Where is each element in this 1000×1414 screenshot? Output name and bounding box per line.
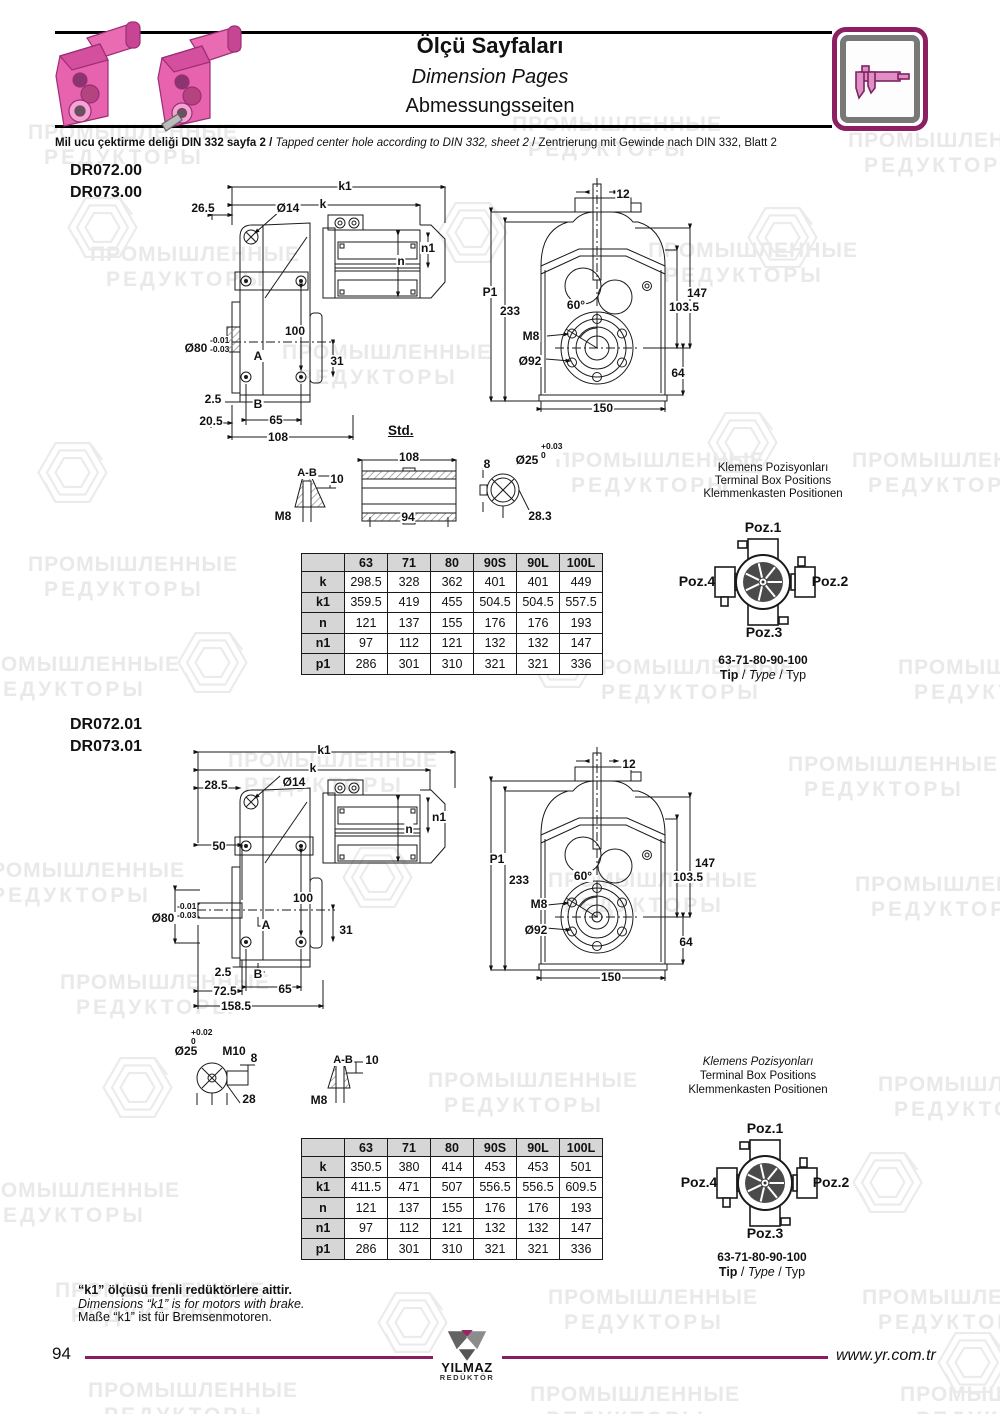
- dim-label: M8: [522, 330, 541, 342]
- yilmaz-logo-icon: [436, 1330, 498, 1362]
- value-cell: 298.5: [345, 572, 388, 593]
- value-cell: 504.5: [517, 592, 560, 613]
- dim-label: 103.5: [668, 301, 700, 313]
- value-cell: 556.5: [517, 1177, 560, 1198]
- dim-label: 10: [364, 1054, 379, 1066]
- dim-label: 147: [694, 857, 716, 869]
- dim-label: B: [253, 968, 264, 980]
- table-header-cell: 71: [388, 1139, 431, 1157]
- value-cell: 321: [474, 1239, 517, 1260]
- table-row: k298.5328362401401449: [302, 572, 603, 593]
- dim-label: A: [253, 350, 264, 362]
- value-cell: 556.5: [474, 1177, 517, 1198]
- watermark-hexagon-icon: [30, 430, 115, 515]
- value-cell: 121: [345, 613, 388, 634]
- dim-label: Ø80: [151, 912, 176, 924]
- value-cell: 414: [431, 1157, 474, 1178]
- page-number: 94: [52, 1344, 71, 1364]
- model-codes-section1: DR072.00 DR073.00: [70, 160, 142, 204]
- terminal-heading-en: Terminal Box Positions: [700, 1070, 816, 1082]
- table-header-cell: 63: [345, 1139, 388, 1157]
- value-cell: 609.5: [560, 1177, 603, 1198]
- value-cell: 401: [474, 572, 517, 593]
- catalog-page: ПРОМЫШЛЕННЫЕРЕДУКТОРЫ ПРОМЫШЛЕННЫЕРЕДУКТ…: [0, 0, 1000, 1414]
- dim-label: n: [404, 823, 413, 835]
- table-header-cell: [302, 1139, 345, 1157]
- dim-label: 26.5: [190, 202, 215, 214]
- watermark-text: ПРОМЫШЛЕННЫЕРЕДУКТОРЫ: [788, 752, 998, 802]
- type-de: Typ: [786, 668, 806, 682]
- dim-label: 2.5: [204, 393, 223, 405]
- dim-label: P1: [482, 286, 499, 298]
- dim-label: P1: [489, 853, 506, 865]
- row-label-cell: n: [302, 1198, 345, 1219]
- side-view-drawing-s1: [185, 180, 457, 446]
- front-view-drawing-s1: [483, 178, 718, 418]
- tolerance-stack: +0.02 0: [191, 1028, 213, 1045]
- value-cell: 121: [431, 1218, 474, 1239]
- row-label-cell: k1: [302, 592, 345, 613]
- dim-label: k: [309, 762, 318, 774]
- value-cell: 132: [474, 633, 517, 654]
- dim-label: 94: [400, 511, 415, 523]
- poz1-label: Poz.1: [745, 519, 782, 535]
- watermark-text: ПРОМЫШЛЕННЫЕРЕДУКТОРЫ: [848, 128, 1000, 178]
- value-cell: 137: [388, 613, 431, 634]
- watermark-text: ПРОМЫШЛЕННЫЕРЕДУКТОРЫ: [855, 872, 1000, 922]
- dim-label: 100: [284, 325, 306, 337]
- tolerance-stack: -0.01 -0.03: [210, 336, 229, 353]
- row-label-cell: k1: [302, 1177, 345, 1198]
- dim-label: Ø25: [515, 454, 540, 466]
- model-codes-section2: DR072.01 DR073.01: [70, 714, 142, 758]
- type-en: Type: [749, 668, 776, 682]
- value-cell: 121: [345, 1198, 388, 1219]
- poz4-label: Poz.4: [679, 573, 716, 589]
- dim-label: 233: [499, 305, 521, 317]
- table-row: k350.5380414453453501: [302, 1157, 603, 1178]
- table-row: n121137155176176193: [302, 1198, 603, 1219]
- poz2-label: Poz.2: [812, 573, 849, 589]
- footnote-english: Dimensions “k1” is for motors with brake…: [78, 1298, 304, 1312]
- value-cell: 137: [388, 1198, 431, 1219]
- din-note-separator: /: [532, 137, 535, 149]
- din-note-german: Zentrierung mit Gewinde nach DIN 332, Bl…: [539, 137, 777, 149]
- value-cell: 411.5: [345, 1177, 388, 1198]
- value-cell: 301: [388, 1239, 431, 1260]
- watermark-text: ПРОМЫШЛЕННЫЕРЕДУКТОРЫ: [898, 655, 1000, 705]
- type-de: Typ: [785, 1265, 805, 1279]
- dim-label: k: [319, 198, 328, 210]
- table-row: p1286301310321321336: [302, 654, 603, 675]
- dim-label: n: [396, 255, 405, 267]
- model-code: DR072.01: [70, 714, 142, 736]
- table-row: n197112121132132147: [302, 1218, 603, 1239]
- dim-label: 65: [277, 983, 292, 995]
- dim-label: 150: [592, 402, 614, 414]
- footer-rule-right: [502, 1356, 828, 1359]
- table-header-cell: [302, 554, 345, 572]
- dim-label: 28: [241, 1093, 256, 1105]
- table-header-cell: 100L: [560, 1139, 603, 1157]
- table-header-cell: 80: [431, 554, 474, 572]
- model-code: DR072.00: [70, 160, 142, 182]
- table-row: n197112121132132147: [302, 633, 603, 654]
- watermark-text: ПРОМЫШЛЕННЫЕРЕДУКТОРЫ: [88, 1378, 298, 1414]
- value-cell: 336: [560, 654, 603, 675]
- dim-label: 233: [508, 874, 530, 886]
- row-label-cell: k: [302, 572, 345, 593]
- table-header-cell: 71: [388, 554, 431, 572]
- tolerance-lower: 0: [541, 451, 563, 460]
- row-label-cell: p1: [302, 1239, 345, 1260]
- logo-subtitle: REDÜKTÖR: [434, 1373, 500, 1382]
- value-cell: 359.5: [345, 592, 388, 613]
- value-cell: 112: [388, 1218, 431, 1239]
- type-label: Tip / Type / Typ: [720, 668, 806, 682]
- table-header-cell: 100L: [560, 554, 603, 572]
- terminal-heading-de: Klemmenkasten Positionen: [688, 1084, 827, 1096]
- dim-label: 65: [268, 414, 283, 426]
- dimension-chapter-icon-frame: [832, 27, 928, 131]
- dim-label: M8: [530, 898, 549, 910]
- type-tr: Tip: [719, 1265, 738, 1279]
- dim-label: 72.5: [212, 985, 237, 997]
- k1-footnote: “k1” ölçüsü frenli redüktörlere aittir. …: [78, 1284, 304, 1325]
- tolerance-lower: 0: [191, 1037, 213, 1046]
- dim-label: k1: [337, 180, 352, 192]
- value-cell: 112: [388, 633, 431, 654]
- row-label-cell: n1: [302, 1218, 345, 1239]
- frame-sizes-label: 63-71-80-90-100: [718, 653, 807, 667]
- poz1-label: Poz.1: [747, 1120, 784, 1136]
- value-cell: 350.5: [345, 1157, 388, 1178]
- value-cell: 176: [474, 1198, 517, 1219]
- dim-label: 64: [678, 936, 693, 948]
- watermark-text: ПРОМЫШЛЕННЫЕРЕДУКТОРЫ: [878, 1072, 1000, 1122]
- value-cell: 97: [345, 633, 388, 654]
- value-cell: 132: [517, 633, 560, 654]
- din-note-english: Tapped center hole according to DIN 332,…: [276, 137, 529, 149]
- dim-label: 147: [686, 287, 708, 299]
- value-cell: 471: [388, 1177, 431, 1198]
- watermark-text: ПРОМЫШЛЕННЫЕРЕДУКТОРЫ: [852, 448, 1000, 498]
- watermark-hexagon-icon: [845, 1140, 930, 1225]
- table-row: k1411.5471507556.5556.5609.5: [302, 1177, 603, 1198]
- dim-label: Ø92: [518, 355, 543, 367]
- value-cell: 155: [431, 613, 474, 634]
- dim-label: 103.5: [672, 871, 704, 883]
- row-label-cell: n1: [302, 633, 345, 654]
- value-cell: 193: [560, 1198, 603, 1219]
- value-cell: 193: [560, 613, 603, 634]
- din-note: Mil ucu çektirme deliği DIN 332 sayfa 2 …: [55, 137, 777, 149]
- dim-label: 8: [250, 1052, 259, 1064]
- table-header-cell: 90L: [517, 1139, 560, 1157]
- type-label: Tip / Type / Typ: [719, 1265, 805, 1279]
- dim-label: Ø80: [184, 342, 209, 354]
- dim-label: 2.5: [214, 966, 233, 978]
- title-turkish: Ölçü Sayfaları: [290, 33, 690, 59]
- table-header-cell: 90S: [474, 1139, 517, 1157]
- terminal-heading-tr: Klemens Pozisyonları: [718, 462, 829, 474]
- din-note-turkish: Mil ucu çektirme deliği DIN 332 sayfa 2 …: [55, 137, 272, 149]
- dim-label: n1: [431, 811, 447, 823]
- table-header-cell: 90S: [474, 554, 517, 572]
- section-mark-label: A-B: [296, 467, 318, 479]
- dim-label: Ø25: [174, 1045, 199, 1057]
- value-cell: 336: [560, 1239, 603, 1260]
- dim-label: 8: [483, 458, 492, 470]
- dim-label: k1: [316, 744, 331, 756]
- dim-label: Ø14: [276, 202, 301, 214]
- dim-label: 28.3: [527, 510, 552, 522]
- value-cell: 449: [560, 572, 603, 593]
- watermark-text: ПРОМЫШЛЕННЫЕРЕДУКТОРЫ: [0, 1178, 180, 1228]
- watermark-text: ПРОМЫШЛЕННЫЕРЕДУКТОРЫ: [530, 1382, 740, 1414]
- value-cell: 453: [517, 1157, 560, 1178]
- dim-label: 10: [329, 473, 344, 485]
- poz2-label: Poz.2: [813, 1174, 850, 1190]
- watermark-hexagon-icon: [740, 195, 825, 280]
- tolerance-lower: -0.03: [210, 345, 229, 354]
- tolerance-stack: +0.03 0: [541, 442, 563, 459]
- dim-label: Ø14: [282, 776, 307, 788]
- value-cell: 328: [388, 572, 431, 593]
- dim-label: 12: [621, 758, 636, 770]
- dim-label: 20.5: [198, 415, 223, 427]
- dimension-table-s2: 63718090S90L100Lk350.5380414453453501k14…: [301, 1138, 603, 1260]
- row-label-cell: k: [302, 1157, 345, 1178]
- value-cell: 176: [517, 613, 560, 634]
- dim-label: A: [261, 919, 272, 931]
- table-row: k1359.5419455504.5504.5557.5: [302, 592, 603, 613]
- footnote-german: Maße “k1” ist für Bremsenmotoren.: [78, 1311, 304, 1325]
- dim-label: M8: [310, 1094, 329, 1106]
- terminal-heading-tr: Klemens Pozisyonları: [703, 1056, 814, 1068]
- dim-label: 108: [267, 431, 289, 443]
- section-mark-label: A-B: [332, 1054, 354, 1066]
- value-cell: 132: [517, 1218, 560, 1239]
- row-label-cell: n: [302, 613, 345, 634]
- value-cell: 132: [474, 1218, 517, 1239]
- value-cell: 419: [388, 592, 431, 613]
- tolerance-lower: -0.03: [177, 911, 196, 920]
- dim-label: 12: [615, 188, 630, 200]
- dim-label: 60°: [566, 299, 586, 311]
- value-cell: 147: [560, 1218, 603, 1239]
- dim-label: M10: [221, 1045, 246, 1057]
- value-cell: 286: [345, 654, 388, 675]
- dim-label: n1: [420, 242, 436, 254]
- watermark-text: ПРОМЫШЛЕННЫЕРЕДУКТОРЫ: [28, 552, 238, 602]
- row-label-cell: p1: [302, 654, 345, 675]
- watermark-hexagon-icon: [930, 1320, 1000, 1405]
- dim-label: 31: [338, 924, 353, 936]
- title-english: Dimension Pages: [290, 66, 690, 89]
- poz3-label: Poz.3: [746, 624, 783, 640]
- page-title: Ölçü Sayfaları Dimension Pages Abmessung…: [290, 33, 690, 118]
- watermark-text: ПРОМЫШЛЕННЫЕРЕДУКТОРЫ: [0, 652, 180, 702]
- title-german: Abmessungsseiten: [290, 95, 690, 118]
- footer-rule-left: [85, 1356, 433, 1359]
- value-cell: 155: [431, 1198, 474, 1219]
- tolerance-stack: -0.01 -0.03: [177, 902, 196, 919]
- website-url: www.yr.com.tr: [836, 1347, 936, 1365]
- value-cell: 301: [388, 654, 431, 675]
- value-cell: 321: [474, 654, 517, 675]
- terminal-heading-en: Terminal Box Positions: [715, 475, 831, 487]
- value-cell: 453: [474, 1157, 517, 1178]
- watermark-text: ПРОМЫШЛЕННЫЕРЕДУКТОРЫ: [428, 1068, 638, 1118]
- value-cell: 380: [388, 1157, 431, 1178]
- value-cell: 557.5: [560, 592, 603, 613]
- value-cell: 176: [474, 613, 517, 634]
- dim-label: 50: [211, 840, 226, 852]
- value-cell: 310: [431, 1239, 474, 1260]
- watermark-text: ПРОМЫШЛЕННЫЕРЕДУКТОРЫ: [548, 1285, 758, 1335]
- value-cell: 97: [345, 1218, 388, 1239]
- caliper-icon: [840, 35, 920, 123]
- value-cell: 362: [431, 572, 474, 593]
- table-header-cell: 90L: [517, 554, 560, 572]
- value-cell: 310: [431, 654, 474, 675]
- table-row: n121137155176176193: [302, 613, 603, 634]
- dim-label: 31: [329, 355, 344, 367]
- dim-label: Ø92: [524, 924, 549, 936]
- dim-label: 150: [600, 971, 622, 983]
- front-view-drawing-s2: [483, 747, 718, 987]
- value-cell: 401: [517, 572, 560, 593]
- type-tr: Tip: [720, 668, 739, 682]
- dimension-table-s1: 63718090S90L100Lk298.5328362401401449k13…: [301, 553, 603, 675]
- value-cell: 321: [517, 1239, 560, 1260]
- value-cell: 507: [431, 1177, 474, 1198]
- type-en: Type: [748, 1265, 775, 1279]
- terminal-heading-de: Klemmenkasten Positionen: [703, 488, 842, 500]
- model-code: DR073.00: [70, 182, 142, 204]
- table-header-cell: 63: [345, 554, 388, 572]
- dim-label: 28.5: [203, 779, 228, 791]
- value-cell: 501: [560, 1157, 603, 1178]
- dim-label: 108: [398, 451, 420, 463]
- footnote-turkish: “k1” ölçüsü frenli redüktörlere aittir.: [78, 1284, 304, 1298]
- value-cell: 121: [431, 633, 474, 654]
- value-cell: 455: [431, 592, 474, 613]
- gearmotor-photo-illustration: [42, 16, 242, 134]
- value-cell: 176: [517, 1198, 560, 1219]
- value-cell: 147: [560, 633, 603, 654]
- value-cell: 286: [345, 1239, 388, 1260]
- dim-label: B: [253, 398, 264, 410]
- table-header-cell: 80: [431, 1139, 474, 1157]
- dim-label: 100: [292, 892, 314, 904]
- value-cell: 504.5: [474, 592, 517, 613]
- table-row: p1286301310321321336: [302, 1239, 603, 1260]
- dim-label: 158.5: [220, 1000, 252, 1012]
- value-cell: 321: [517, 654, 560, 675]
- frame-sizes-label: 63-71-80-90-100: [717, 1250, 806, 1264]
- poz4-label: Poz.4: [681, 1174, 718, 1190]
- dim-label: 60°: [573, 870, 593, 882]
- watermark-hexagon-icon: [170, 620, 255, 705]
- std-label: Std.: [388, 423, 414, 438]
- dim-label: M8: [274, 510, 293, 522]
- poz3-label: Poz.3: [747, 1225, 784, 1241]
- model-code: DR073.01: [70, 736, 142, 758]
- dim-label: 64: [670, 367, 685, 379]
